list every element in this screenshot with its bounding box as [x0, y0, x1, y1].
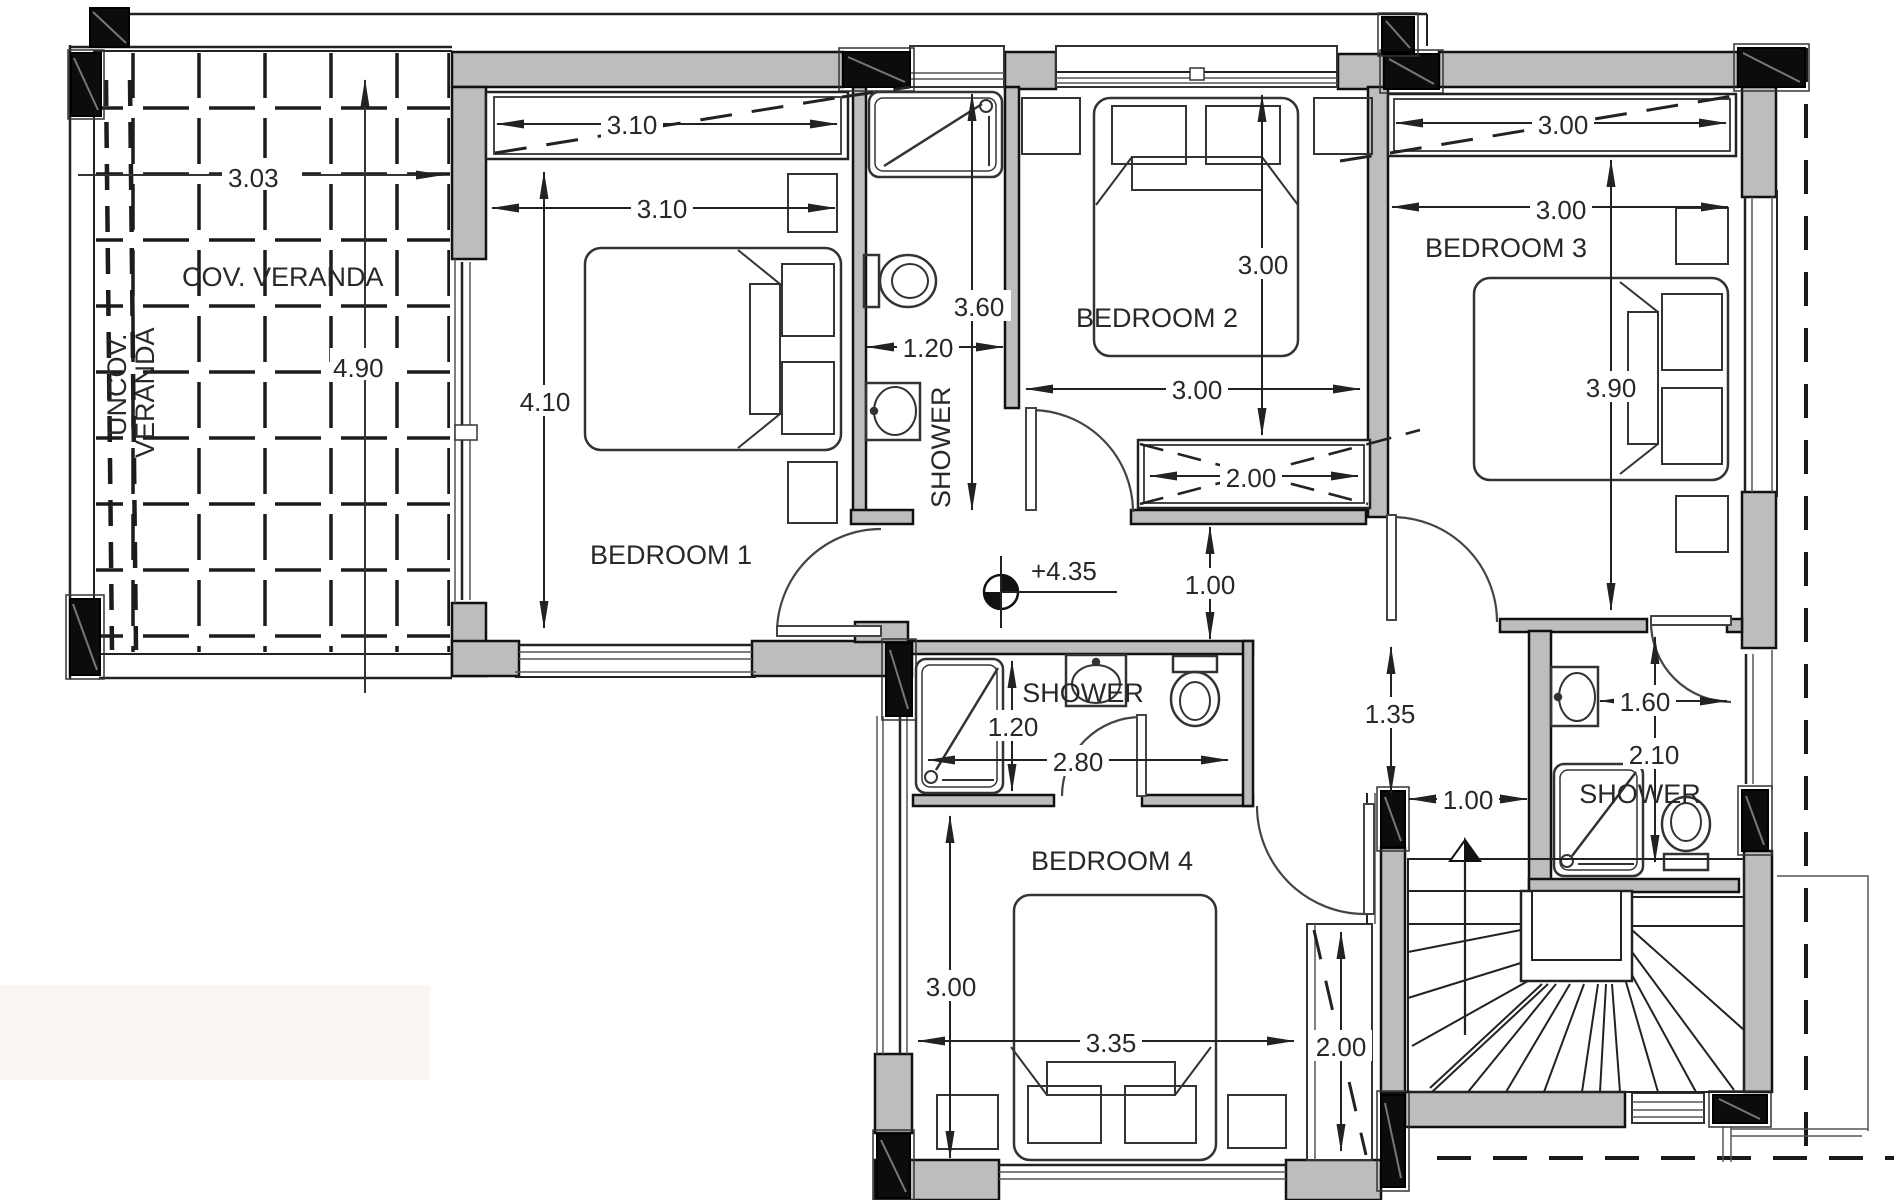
svg-text:3.90: 3.90	[1586, 373, 1637, 403]
svg-text:BEDROOM 4: BEDROOM 4	[1031, 846, 1193, 876]
svg-text:UNCOV.: UNCOV.	[102, 333, 132, 436]
svg-text:COV. VERANDA: COV. VERANDA	[182, 262, 384, 292]
svg-text:3.03: 3.03	[228, 163, 279, 193]
svg-text:3.00: 3.00	[926, 972, 977, 1002]
svg-text:3.00: 3.00	[1238, 250, 1289, 280]
svg-text:SHOWER: SHOWER	[926, 387, 956, 509]
svg-text:3.10: 3.10	[607, 110, 658, 140]
svg-text:2.80: 2.80	[1053, 747, 1104, 777]
svg-text:3.10: 3.10	[637, 194, 688, 224]
svg-text:+4.35: +4.35	[1031, 556, 1097, 586]
svg-text:1.35: 1.35	[1365, 699, 1416, 729]
svg-text:3.00: 3.00	[1172, 375, 1223, 405]
svg-text:1.00: 1.00	[1443, 785, 1494, 815]
svg-text:VERANDA: VERANDA	[130, 327, 160, 458]
svg-text:3.00: 3.00	[1538, 110, 1589, 140]
svg-text:BEDROOM 1: BEDROOM 1	[590, 540, 752, 570]
svg-text:2.10: 2.10	[1629, 740, 1680, 770]
svg-text:4.90: 4.90	[333, 353, 384, 383]
svg-text:1.20: 1.20	[988, 712, 1039, 742]
svg-text:3.35: 3.35	[1086, 1028, 1137, 1058]
svg-text:1.00: 1.00	[1185, 570, 1236, 600]
svg-text:SHOWER: SHOWER	[1579, 779, 1701, 809]
svg-text:4.10: 4.10	[520, 387, 571, 417]
svg-text:2.00: 2.00	[1226, 463, 1277, 493]
svg-text:1.60: 1.60	[1620, 687, 1671, 717]
svg-text:BEDROOM 3: BEDROOM 3	[1425, 233, 1587, 263]
svg-text:2.00: 2.00	[1316, 1032, 1367, 1062]
svg-text:SHOWER: SHOWER	[1022, 678, 1144, 708]
svg-text:1.20: 1.20	[903, 333, 954, 363]
svg-text:BEDROOM 2: BEDROOM 2	[1076, 303, 1238, 333]
svg-text:3.00: 3.00	[1536, 195, 1587, 225]
svg-text:3.60: 3.60	[954, 292, 1005, 322]
